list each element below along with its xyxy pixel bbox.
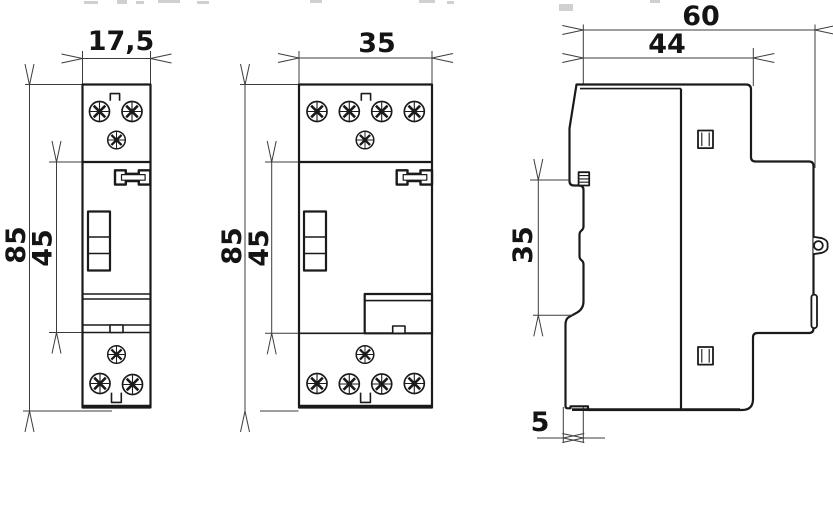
switch-lever bbox=[88, 212, 110, 271]
device-outline bbox=[566, 85, 814, 411]
dimension-section-45: 45 bbox=[244, 162, 298, 333]
front-view-single-module: 17,5 85 45 bbox=[1, 26, 154, 411]
screw-icon bbox=[404, 102, 424, 122]
dimension-width-35: 35 bbox=[299, 28, 432, 84]
vent-slot-lower bbox=[698, 347, 713, 365]
screw-icon bbox=[90, 102, 110, 122]
dim-label-mid-height: 35 bbox=[508, 226, 539, 264]
screw-icon bbox=[356, 131, 374, 149]
din-slide-tab bbox=[393, 326, 405, 333]
switch-lever bbox=[304, 212, 326, 271]
screw-icon bbox=[339, 102, 359, 122]
screw-icon bbox=[372, 374, 392, 394]
screw-icon bbox=[122, 102, 142, 122]
dim-label-width-double: 35 bbox=[358, 28, 396, 59]
din-ear bbox=[814, 237, 828, 254]
screw-icon bbox=[339, 374, 359, 394]
screw-icon bbox=[404, 374, 424, 394]
dimension-body-depth-44: 44 bbox=[583, 29, 753, 86]
dimension-mid-height-35: 35 bbox=[508, 180, 574, 315]
dim-label-section-double: 45 bbox=[244, 229, 275, 267]
screw-icon bbox=[108, 131, 126, 149]
dim-label-foot-offset: 5 bbox=[531, 407, 550, 438]
screw-icon bbox=[307, 102, 327, 122]
screw-icon bbox=[90, 374, 110, 394]
vent-slot-upper bbox=[698, 131, 713, 149]
terminal-clamp bbox=[579, 172, 590, 185]
din-rail-clip bbox=[811, 295, 817, 329]
dimension-section-45: 45 bbox=[28, 162, 82, 333]
dimensional-drawing: 17,5 85 45 bbox=[0, 0, 833, 526]
dim-label-depth: 60 bbox=[682, 1, 720, 32]
dimension-width-17-5: 17,5 bbox=[83, 26, 155, 84]
dim-label-width-single: 17,5 bbox=[88, 26, 155, 57]
screw-icon bbox=[123, 375, 143, 395]
dim-label-body-depth: 44 bbox=[648, 29, 686, 60]
dimensional-drawing-page: 17,5 85 45 bbox=[0, 0, 833, 526]
screw-icon bbox=[372, 102, 392, 122]
din-slide-tab bbox=[110, 325, 123, 333]
screw-icon bbox=[307, 374, 327, 394]
cropped-top-artifacts bbox=[84, 0, 660, 11]
screw-icon bbox=[356, 346, 374, 364]
front-view-double-module: 35 85 45 bbox=[217, 28, 432, 411]
dimension-foot-offset-5: 5 bbox=[531, 407, 605, 443]
side-view: 60 44 35 5 bbox=[508, 1, 828, 443]
dim-label-section-single: 45 bbox=[28, 229, 59, 267]
screw-icon bbox=[108, 346, 126, 364]
